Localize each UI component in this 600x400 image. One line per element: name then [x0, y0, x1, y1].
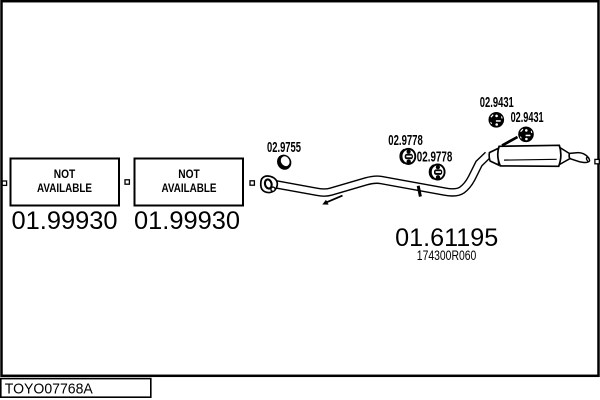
svg-text:AVAILABLE: AVAILABLE — [37, 181, 92, 195]
svg-text:NOT: NOT — [54, 167, 76, 181]
svg-text:AVAILABLE: AVAILABLE — [162, 181, 217, 195]
svg-text:02.9431: 02.9431 — [480, 95, 514, 111]
svg-text:02.9778: 02.9778 — [388, 133, 423, 149]
svg-text:01.99930: 01.99930 — [12, 207, 118, 235]
svg-text:02.9755: 02.9755 — [267, 140, 301, 156]
svg-text:01.99930: 01.99930 — [134, 207, 240, 235]
svg-text:02.9778: 02.9778 — [417, 149, 453, 165]
svg-text:NOT: NOT — [178, 167, 200, 181]
svg-text:174300R060: 174300R060 — [417, 248, 477, 263]
svg-text:02.9431: 02.9431 — [511, 110, 544, 126]
svg-text:TOYO07768A: TOYO07768A — [5, 380, 93, 397]
